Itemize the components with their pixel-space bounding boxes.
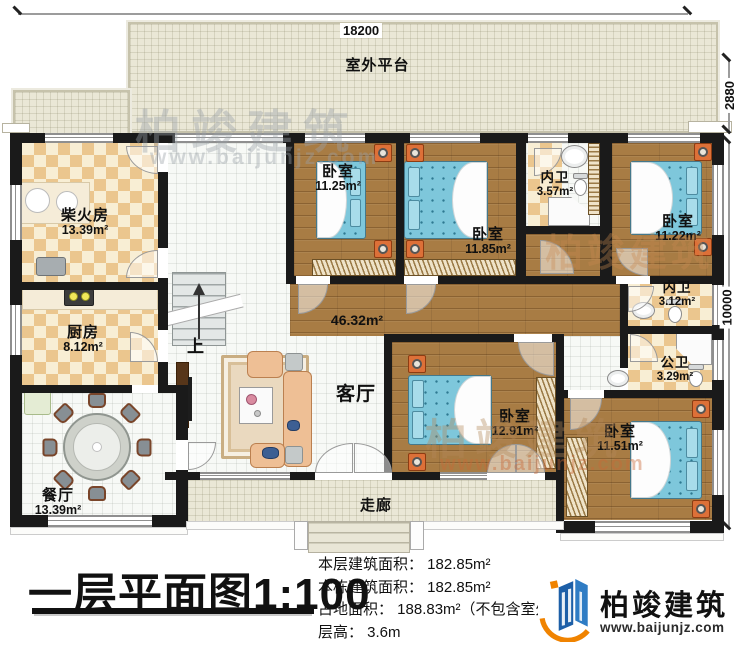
door-opening [514,334,552,342]
sofa-cushion [262,447,279,459]
room-label-ensuite-b: 内卫3.12m² [648,281,706,308]
window [175,133,283,143]
window [528,133,568,143]
dimension-tick [722,52,732,62]
tv-screen [188,377,192,421]
door-opening [296,276,330,284]
room-name: 客厅 [326,385,386,406]
dining-chair [88,393,106,408]
room-area: 3.29m² [646,371,704,383]
table-dish [254,410,261,417]
brand-logo-icon [538,572,596,642]
room-label-kitchen: 厨房8.12m² [48,325,118,355]
stat-line: 本栋建筑面积： 182.85m² [318,577,551,600]
plinth [10,527,188,535]
wall-interior [286,133,294,284]
nightstand [374,240,392,258]
room-name: 公卫 [646,356,704,371]
room-area: 11.85m² [448,243,528,257]
window [440,472,487,480]
porch-post [410,521,424,550]
building-stats: 本层建筑面积： 182.85m² 本栋建筑面积： 182.85m² 占地面积： … [318,554,551,644]
brand-logo-block: 柏竣建筑 www.baijunjz.com [538,570,748,646]
wall-interior [556,334,564,533]
bathroom-shelf [588,143,600,215]
armchair [247,351,283,378]
room-name: 走廊 [344,498,408,514]
bed-pillow [686,461,698,491]
wardrobe [312,259,396,276]
living-area-label: 46.32m² [322,313,392,328]
dimension-label-side-depth: 10000 [720,286,735,328]
coffee-table [239,387,273,424]
dimension-label-platform-depth: 2880 [722,78,737,113]
window [45,133,113,143]
living-name-label: 客厅 [326,385,386,406]
bed-pillow [408,167,420,197]
wall-interior [22,282,168,290]
room-name: 餐厅 [16,488,100,504]
room-label-bedroom-c: 卧室11.22m² [642,214,714,244]
bed-pillow [408,200,420,230]
hallway-floor [290,284,628,336]
room-area: 13.39m² [40,224,130,238]
dimension-line-top [18,13,688,15]
sofa-cushion [287,420,300,431]
stairs-up-label: 上 [178,338,214,356]
nightstand [374,144,392,162]
dining-chair [43,439,58,457]
room-area: 3.12m² [648,296,706,308]
stat-line: 占地面积： 188.83m²（不包含室外 [318,599,551,622]
platform-step-left [2,123,30,133]
room-area: 13.39m² [16,504,100,518]
room-label-bedroom-d: 卧室12.91m² [478,409,552,439]
room-area: 11.22m² [642,230,714,244]
nightstand [692,400,710,418]
door-opening [404,276,438,284]
plinth [560,533,724,541]
wall-interior [600,133,612,284]
bed-pillow [350,199,361,227]
window [712,430,724,495]
room-name: 卧室 [478,409,552,425]
room-name: 室外平台 [330,58,425,74]
room-area: 3.57m² [526,186,584,198]
wall-interior [620,326,712,334]
nightstand [694,143,712,161]
cooktop-burner [69,292,78,301]
room-name: 内卫 [526,171,584,186]
dimension-label-top: 18200 [340,23,382,38]
window [200,472,290,480]
window [712,340,724,380]
dining-table-center [92,442,102,452]
side-table [285,353,303,371]
wall-interior [396,133,404,284]
sink-basin [36,257,66,276]
room-label-firewood: 柴火房13.39m² [40,208,130,238]
door-opening [315,472,392,480]
stairs-direction: 上 [178,338,214,356]
door-opening [158,330,168,362]
wash-basin [607,370,629,387]
entry-steps [308,521,410,553]
window [595,521,690,533]
door-opening [487,472,545,480]
bed-pillow [412,411,424,439]
door-opening [158,143,168,172]
nightstand [408,355,426,373]
room-name: 卧室 [448,227,528,243]
room-label-bedroom-e: 卧室11.51m² [583,424,657,454]
window [10,185,22,240]
bed-pillow [686,428,698,458]
room-area: 8.12m² [48,341,118,355]
stair-up-arrow [190,281,208,341]
room-name: 柴火房 [40,208,130,224]
window [410,133,480,143]
window [628,133,700,143]
stat-line: 本层建筑面积： 182.85m² [318,554,551,577]
dimension-line-side-depth [728,142,730,528]
nightstand [408,453,426,471]
wall-exterior-top [10,133,724,143]
outdoor-platform-left-wing [13,90,130,135]
room-name: 内卫 [648,281,706,296]
room-label-bedroom-a: 卧室11.25m² [300,164,376,194]
outdoor-platform [128,22,718,133]
nightstand [692,500,710,518]
room-area: 11.51m² [583,440,657,454]
room-area: 11.25m² [300,180,376,194]
room-label-shared-bath: 公卫3.29m² [646,356,704,383]
room-label-ensuite-a: 内卫3.57m² [526,171,584,198]
room-label-corridor: 走廊 [344,498,408,514]
door-opening [568,390,604,398]
door-opening [132,385,158,393]
room-label-outdoor: 室外平台 [330,58,425,74]
bathroom-sink [561,145,588,168]
door-opening [176,440,188,470]
floor-plan-canvas: 18200 2880 10000 [0,0,750,650]
room-area: 12.91m² [478,425,552,439]
room-name: 卧室 [583,424,657,440]
cooktop-burner [81,292,90,301]
room-name: 卧室 [642,214,714,230]
window [10,305,22,355]
window [305,133,365,143]
wall-interior [620,276,628,368]
wall-interior [516,226,612,234]
brand-website: www.baijunjz.com [600,620,725,635]
door-opening [616,276,650,284]
room-name: 卧室 [300,164,376,180]
nightstand [406,240,424,258]
dining-chair [137,439,152,457]
brand-name: 柏竣建筑 [600,582,728,624]
title-underline [32,608,314,614]
room-name: 厨房 [48,325,118,341]
room-label-dining: 餐厅13.39m² [16,488,100,518]
wall-interior [516,133,526,284]
table-flowers [246,394,257,405]
porch-post [294,521,308,550]
door-opening [158,248,168,278]
bed-pillow [412,380,424,408]
wardrobe [404,259,516,276]
nightstand [406,144,424,162]
stat-line: 层高： 3.6m [318,622,551,645]
room-label-bedroom-b: 卧室11.85m² [448,227,528,257]
bed-pillow [686,167,698,195]
room-area: 46.32m² [322,313,392,328]
side-table [285,446,303,464]
